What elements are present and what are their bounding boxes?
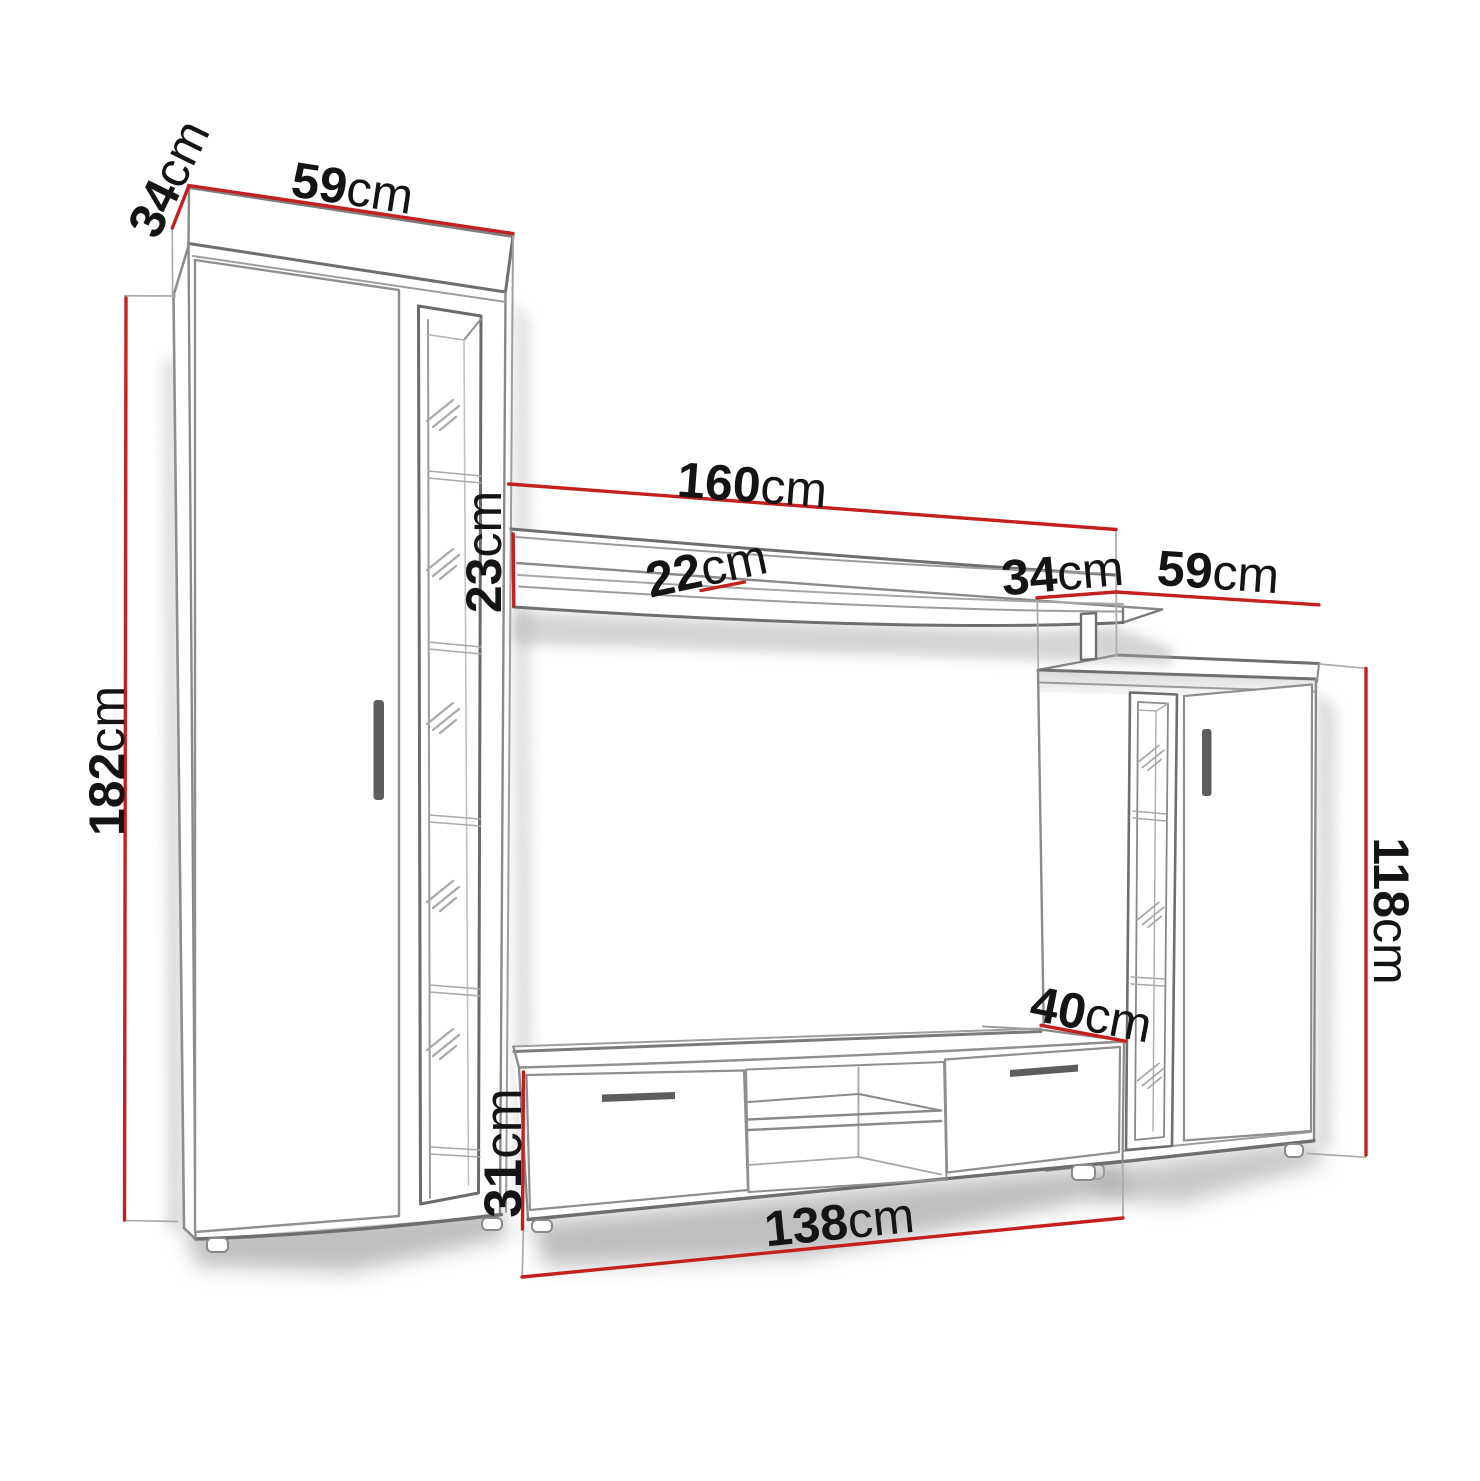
svg-text:59cm: 59cm (1155, 540, 1281, 604)
svg-text:160cm: 160cm (675, 451, 829, 518)
svg-text:34cm: 34cm (999, 540, 1126, 606)
svg-text:118cm: 118cm (1363, 837, 1419, 984)
svg-text:23cm: 23cm (456, 491, 512, 613)
svg-text:31cm: 31cm (474, 1088, 533, 1218)
svg-text:182cm: 182cm (79, 686, 135, 836)
